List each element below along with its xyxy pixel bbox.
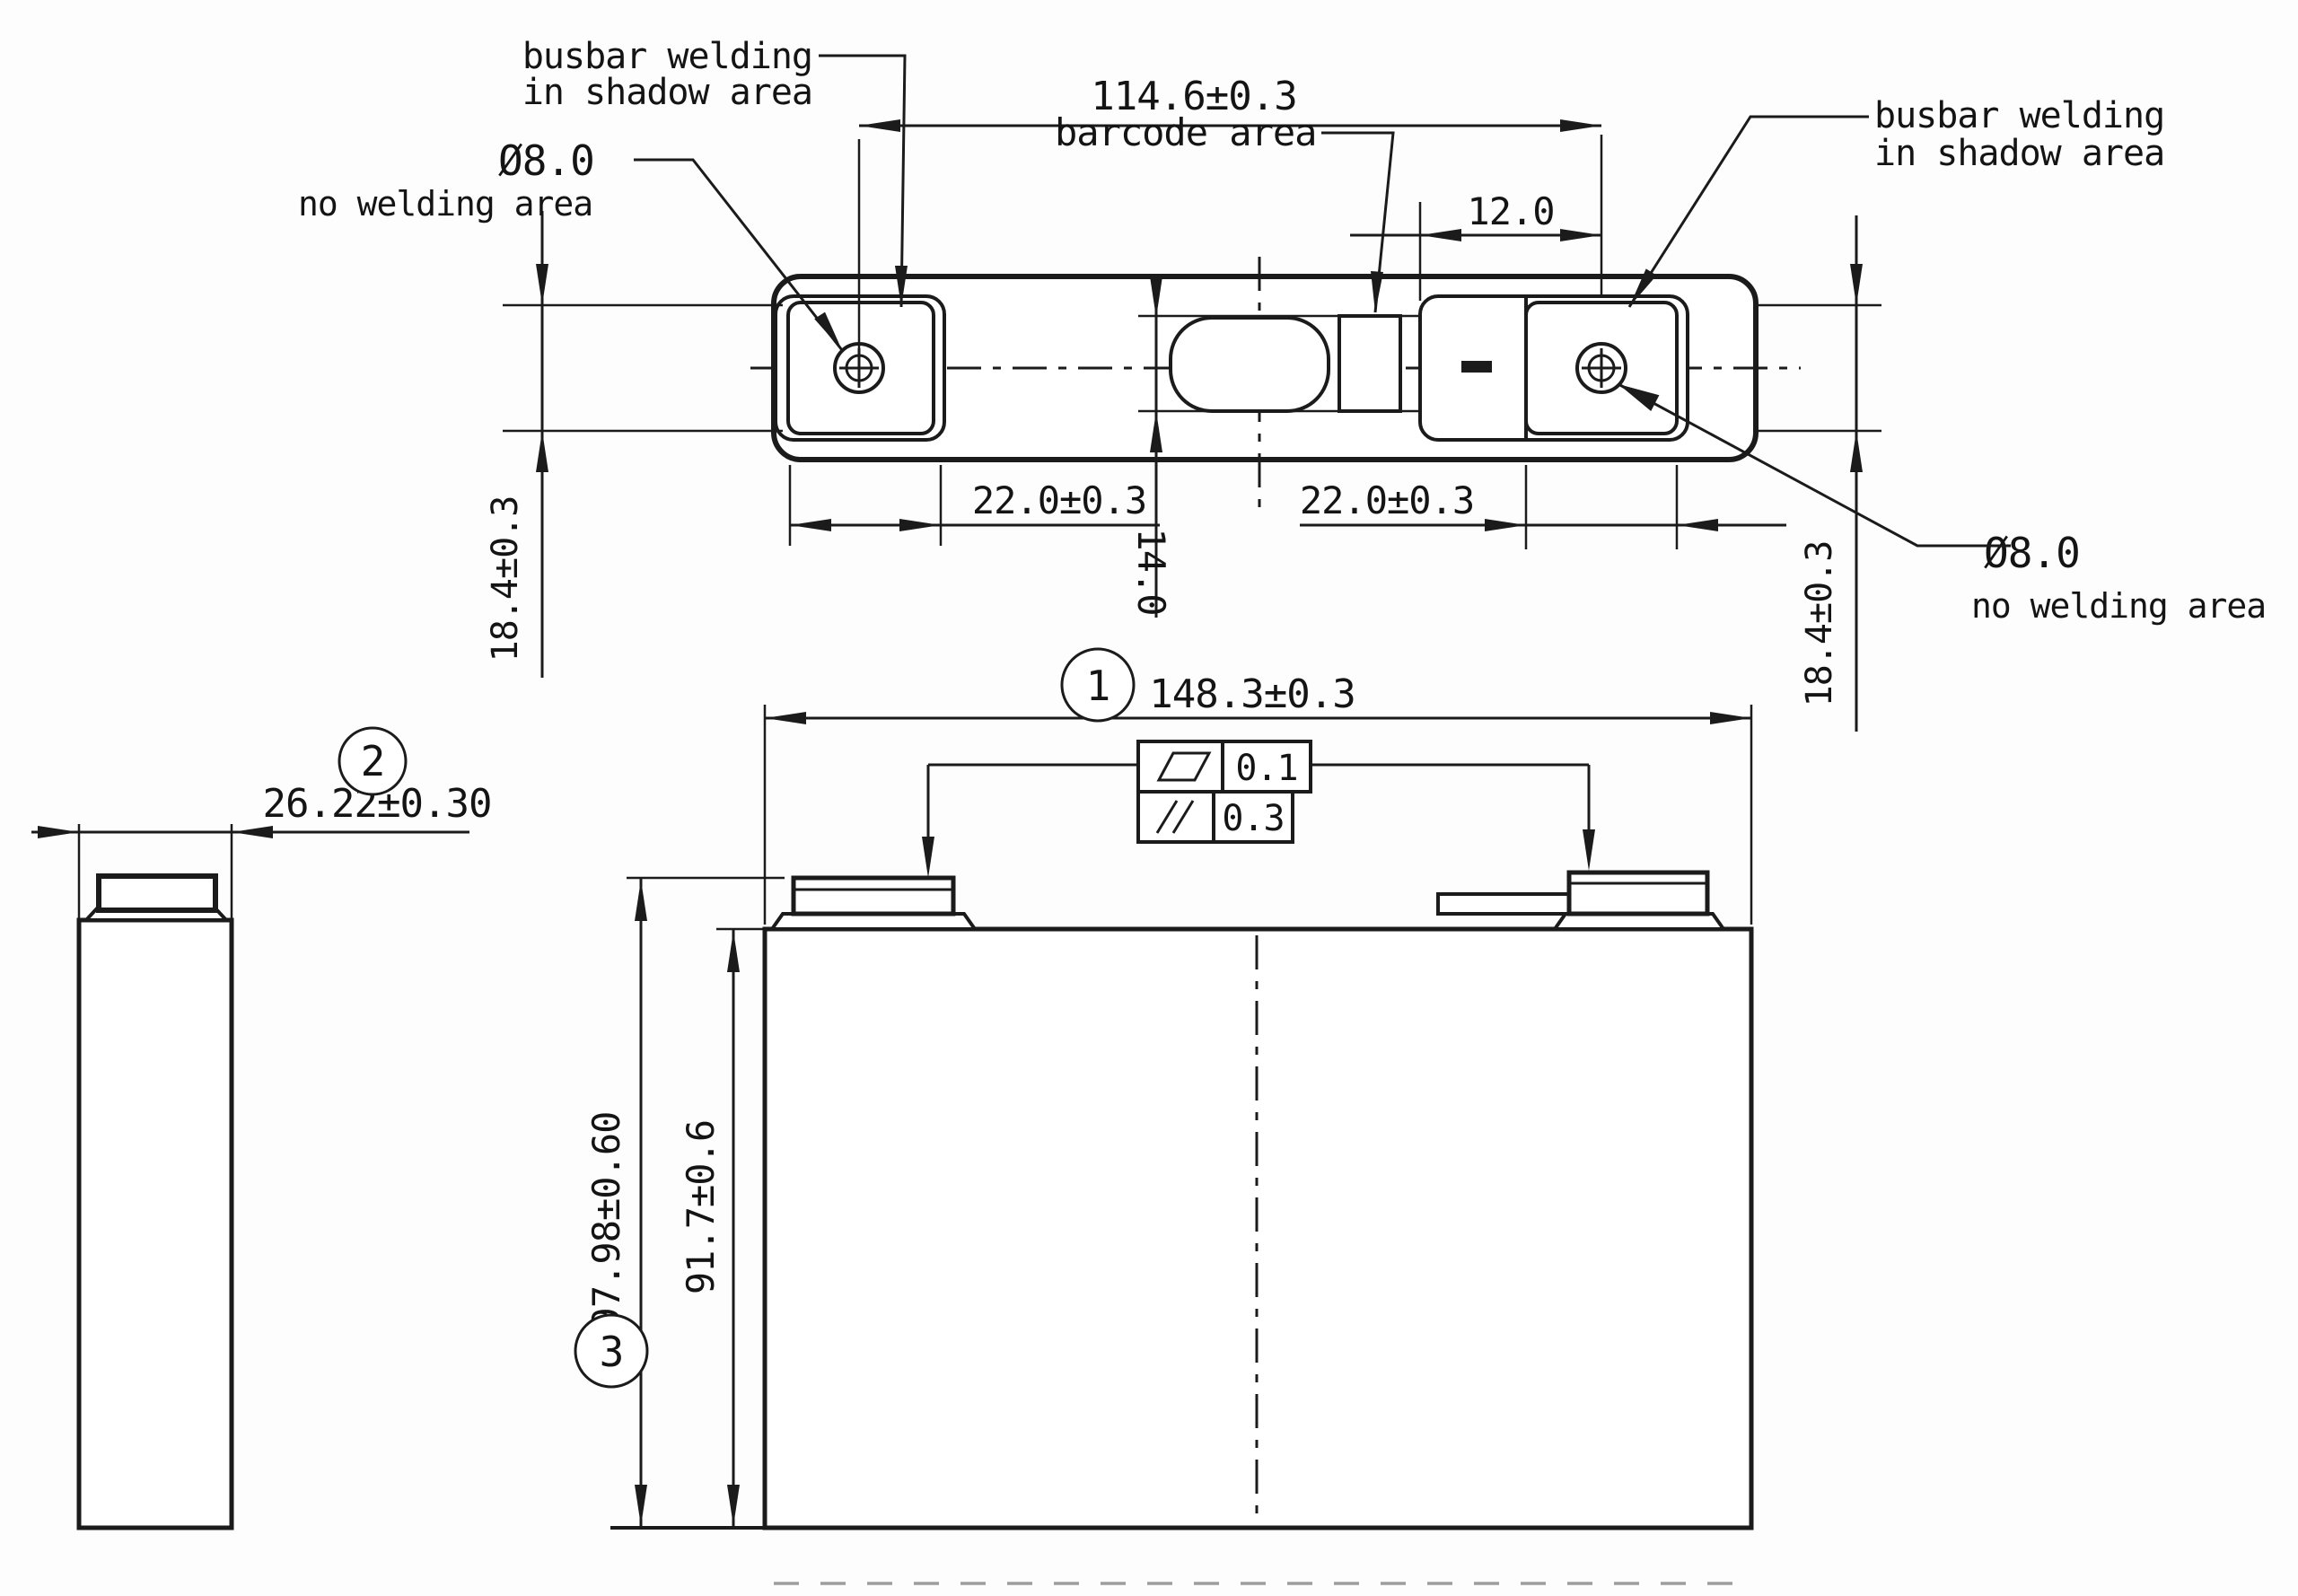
flatness-value: 0.1 xyxy=(1235,748,1297,789)
front-left-terminal-base xyxy=(772,914,975,929)
dim-terminal-zone-left: 18.4±0.3 xyxy=(485,211,783,678)
balloon-2-text: 2 xyxy=(361,737,385,785)
no-welding-right-text: no welding area xyxy=(1971,586,2266,626)
front-view xyxy=(610,873,1751,1583)
dim-weld-area-right: 22.0±0.3 xyxy=(1300,465,1786,549)
busbar-right-line2: in shadow area xyxy=(1874,133,2164,174)
barcode-square xyxy=(1339,316,1400,411)
fcf-left-arrow xyxy=(922,837,934,878)
dim-height-total-text: 97.98±0.60 xyxy=(584,1112,628,1330)
battery-cell-drawing: 114.6±0.3 12.0 22.0±0.3 22.0±0.3 14.0 xyxy=(0,0,2298,1596)
label-no-welding-left: Ø8.0 no welding area xyxy=(298,136,842,350)
busbar-left-line2: in shadow area xyxy=(522,72,812,113)
fcf-right-arrow xyxy=(1583,829,1595,871)
dim-cell-width-text: 148.3±0.3 xyxy=(1149,671,1355,717)
engineering-drawing-page: 114.6±0.3 12.0 22.0±0.3 22.0±0.3 14.0 xyxy=(0,0,2298,1596)
parallelism-value: 0.3 xyxy=(1222,798,1284,839)
dim-height-can-text: 91.7±0.6 xyxy=(679,1120,723,1294)
feature-control-frames: 0.1 0.3 xyxy=(922,741,1595,878)
busbar-right-line1: busbar welding xyxy=(1874,95,2164,136)
minus-polarity-mark xyxy=(1461,361,1492,373)
no-welding-left-text: no welding area xyxy=(298,184,592,224)
no-welding-right-dia: Ø8.0 xyxy=(1984,529,2080,577)
side-view-terminal-block xyxy=(99,876,215,910)
side-view-body xyxy=(79,920,232,1528)
balloon-3-text: 3 xyxy=(600,1328,624,1376)
side-view: 26.22±0.30 2 xyxy=(31,728,491,1528)
dim-weld-area-left: 22.0±0.3 xyxy=(790,465,1160,546)
front-right-terminal-base xyxy=(1555,914,1723,929)
dim-terminal-zone-right: 18.4±0.3 xyxy=(1756,215,1881,732)
dim-cell-height-can: 91.7±0.6 xyxy=(679,929,768,1528)
front-left-terminal-block xyxy=(794,878,953,914)
dim-terminal-zone-left-text: 18.4±0.3 xyxy=(485,496,526,662)
vent-oval xyxy=(1171,318,1329,411)
dim-vent-height-text: 14.0 xyxy=(1129,528,1173,615)
top-view xyxy=(750,257,1801,507)
front-right-terminal-step xyxy=(1438,894,1569,914)
dim-barcode-offset-text: 12.0 xyxy=(1467,189,1554,233)
barcode-area-text: barcode area xyxy=(1055,110,1316,154)
dim-weld-left-text: 22.0±0.3 xyxy=(972,478,1146,522)
front-right-terminal-block xyxy=(1569,873,1707,914)
balloon-1-text: 1 xyxy=(1086,662,1110,710)
busbar-left-leader xyxy=(819,56,905,307)
dim-terminal-zone-right-text: 18.4±0.3 xyxy=(1799,541,1840,707)
no-welding-left-dia: Ø8.0 xyxy=(498,136,594,185)
dim-weld-right-text: 22.0±0.3 xyxy=(1300,478,1474,522)
